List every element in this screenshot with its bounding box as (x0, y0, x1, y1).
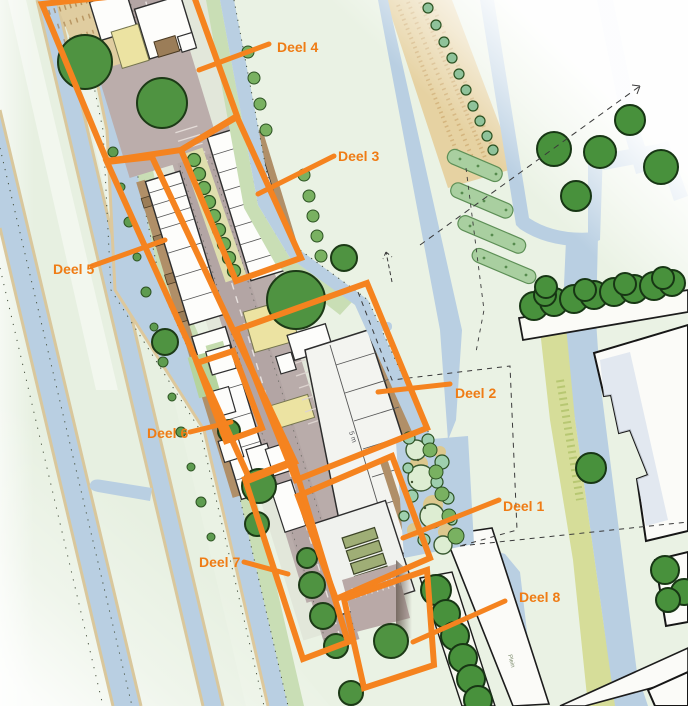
svg-text:Deel 2: Deel 2 (455, 385, 496, 401)
svg-text:Deel 7: Deel 7 (199, 554, 240, 570)
svg-text:Deel 3: Deel 3 (338, 148, 379, 164)
svg-text:Deel 1: Deel 1 (503, 498, 544, 514)
svg-text:Deel 5: Deel 5 (53, 261, 94, 277)
svg-text:Deel 8: Deel 8 (519, 589, 560, 605)
svg-text:Deel 6: Deel 6 (147, 425, 188, 441)
svg-text:Deel 4: Deel 4 (277, 39, 318, 55)
